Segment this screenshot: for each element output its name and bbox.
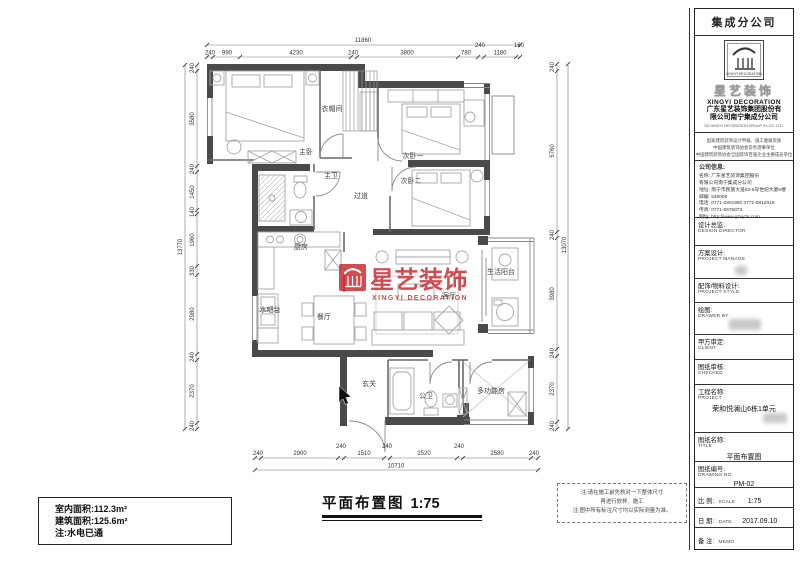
svg-text:13070: 13070	[562, 236, 568, 253]
svg-text:990: 990	[222, 51, 233, 57]
company-name-line2: 限公司南宁集成分公司	[695, 114, 793, 122]
svg-text:240: 240	[382, 444, 393, 450]
drawing-title-value: 平面布置图	[698, 452, 790, 462]
hatch-areas	[343, 71, 528, 419]
caption-scale: 1:75	[411, 496, 440, 512]
company-logo-block: XINGYI DECORATION 星艺装饰 XINGYI DECORATION…	[695, 36, 793, 133]
svg-text:主卧: 主卧	[299, 147, 313, 156]
svg-text:240: 240	[190, 351, 196, 362]
row-date: 日 期: DATE 2017.09.10	[695, 508, 793, 528]
signature-blur	[735, 266, 747, 275]
row-design-director: 设计总监: DESIGN DIRECTOR	[695, 218, 793, 246]
drawing-caption: 平面布置图 1:75	[322, 492, 492, 521]
branch-title: 集成分公司	[695, 9, 793, 36]
caption-title: 平面布置图	[322, 496, 405, 512]
svg-text:2520: 2520	[417, 451, 431, 457]
svg-text:140: 140	[190, 206, 196, 217]
row-drawing-no: 图纸编号: DRAWING NO. PM-02	[695, 462, 793, 488]
company-logo-icon: XINGYI DECORATION	[724, 40, 764, 80]
dims-right: 13070 240 5760 240 3980 240 2370 240	[550, 61, 568, 431]
svg-text:240: 240	[475, 43, 486, 49]
utilities-note: 注:水电已通	[55, 527, 231, 539]
company-info-heading: 公司信息:	[699, 164, 789, 172]
row-project-name: 工程名称: PROJECT 荣和悦澜山6栋1单元	[695, 385, 793, 433]
svg-text:240: 240	[550, 229, 556, 240]
row-client: 甲方审定: CLIENT	[695, 335, 793, 360]
svg-text:公卫: 公卫	[419, 392, 433, 400]
svg-text:330: 330	[190, 265, 196, 276]
svg-text:160: 160	[514, 43, 525, 49]
scale-value: 1:75	[748, 498, 762, 505]
svg-text:玄关: 玄关	[362, 379, 376, 388]
svg-text:水吧台: 水吧台	[260, 305, 281, 314]
date-value: 2017.09.10	[742, 518, 777, 525]
redacted-blur	[763, 413, 787, 423]
svg-text:240: 240	[205, 51, 216, 57]
caption-underline-thin	[322, 520, 482, 521]
row-scale: 比 例: SCALE 1:75	[695, 488, 793, 508]
row-project-style: 配饰/物料设计: PROJECT STYLE	[695, 279, 793, 303]
svg-text:240: 240	[454, 444, 465, 450]
svg-text:衣帽间: 衣帽间	[322, 104, 343, 113]
svg-text:星艺装饰: 星艺装饰	[370, 267, 468, 294]
caption-underline-thick	[322, 515, 482, 518]
svg-text:2370: 2370	[550, 382, 556, 396]
svg-text:10710: 10710	[388, 464, 405, 470]
row-project-manage: 方案设计: PROJECT MANAGE	[695, 246, 793, 279]
drawing-no-value: PM-02	[698, 481, 790, 488]
company-name-en: GD.XINGYI DECORATION GROUP SX CO.,LTD.	[700, 123, 788, 128]
svg-text:780: 780	[461, 51, 472, 57]
dims-left: 13770 240 3580 240 1450 140 1960 330 298…	[178, 62, 196, 431]
area-info-box: 室内面积:112.3m² 建筑面积:125.6m² 注:水电已通	[38, 497, 232, 545]
titleblock-separator	[689, 8, 690, 550]
svg-text:4230: 4230	[289, 51, 303, 57]
svg-text:2580: 2580	[490, 451, 504, 457]
svg-text:240: 240	[348, 51, 359, 57]
floor-plan-svg: 11860 240 990 4230 240 3800 780 240 1180…	[0, 0, 690, 559]
signature-blur	[729, 319, 761, 330]
svg-text:1960: 1960	[190, 233, 196, 247]
svg-text:240: 240	[550, 61, 556, 72]
svg-text:3980: 3980	[550, 287, 556, 301]
svg-text:240: 240	[190, 420, 196, 431]
svg-text:240: 240	[253, 451, 264, 457]
svg-text:240: 240	[336, 444, 347, 450]
construction-note-box: 注:请在施工前先核对一下整体尺寸 再进行放样、施工 注:图中所有标注尺寸均以实际…	[557, 483, 687, 523]
svg-text:主卫: 主卫	[324, 171, 338, 180]
logo-cn-text: 星艺装饰	[695, 82, 793, 99]
svg-text:1180: 1180	[494, 51, 508, 57]
svg-text:厨房: 厨房	[294, 242, 308, 251]
svg-text:240: 240	[550, 420, 556, 431]
svg-text:240: 240	[190, 62, 196, 73]
svg-text:XINGYI DECORATION: XINGYI DECORATION	[372, 295, 468, 302]
building-area: 建筑面积:125.6m²	[55, 515, 231, 527]
svg-text:2370: 2370	[190, 384, 196, 398]
credentials: 国家建筑装饰设计甲级、施工壹级资质 中国建筑装饰协会常务理事单位 中国建筑装饰协…	[695, 133, 793, 161]
indoor-area: 室内面积:112.3m²	[55, 503, 231, 515]
row-memo: 备 注: MEMO	[695, 528, 793, 546]
svg-text:13770: 13770	[178, 238, 184, 255]
svg-text:11860: 11860	[355, 38, 372, 44]
watermark-logo: 星艺装饰 XINGYI DECORATION	[339, 264, 468, 302]
row-drawing-title: 图纸名称: TITLE 平面布置图	[695, 433, 793, 462]
row-checked: 图纸审核: CHECKED	[695, 360, 793, 385]
svg-text:2900: 2900	[293, 451, 307, 457]
svg-text:2980: 2980	[190, 307, 196, 321]
svg-text:过道: 过道	[354, 191, 368, 200]
svg-text:5760: 5760	[550, 144, 556, 158]
svg-text:240: 240	[190, 163, 196, 174]
svg-text:次卧二: 次卧二	[401, 176, 422, 185]
svg-text:240: 240	[529, 451, 540, 457]
svg-text:XINGYI DECORATION: XINGYI DECORATION	[726, 72, 762, 76]
svg-text:3800: 3800	[400, 51, 414, 57]
logo-en-text: XINGYI DECORATION	[695, 99, 793, 106]
svg-text:1510: 1510	[357, 451, 371, 457]
svg-text:1450: 1450	[190, 185, 196, 199]
svg-text:次卧一: 次卧一	[403, 151, 424, 160]
titleblock: 集成分公司 XINGYI DECORATION 星艺装饰 XINGYI DECO…	[694, 8, 794, 550]
svg-text:多功能房: 多功能房	[477, 386, 505, 395]
row-drawer-by: 绘图: DRAWER BY	[695, 303, 793, 335]
svg-text:3580: 3580	[190, 112, 196, 126]
svg-text:生活阳台: 生活阳台	[487, 267, 515, 276]
svg-text:240: 240	[550, 347, 556, 358]
dims-top: 11860 240 990 4230 240 3800 780 240 1180…	[205, 38, 525, 57]
company-info: 公司信息: 名称: 广东星艺装饰集团股份 有限公司南宁集成分公司 地址: 南宁市…	[695, 161, 793, 218]
svg-text:餐厅: 餐厅	[317, 312, 331, 321]
drawing-sheet: 11860 240 990 4230 240 3800 780 240 1180…	[0, 0, 800, 559]
dims-bottom: 10710 240 2900 240 1510 240 2520 240 258…	[253, 444, 540, 470]
